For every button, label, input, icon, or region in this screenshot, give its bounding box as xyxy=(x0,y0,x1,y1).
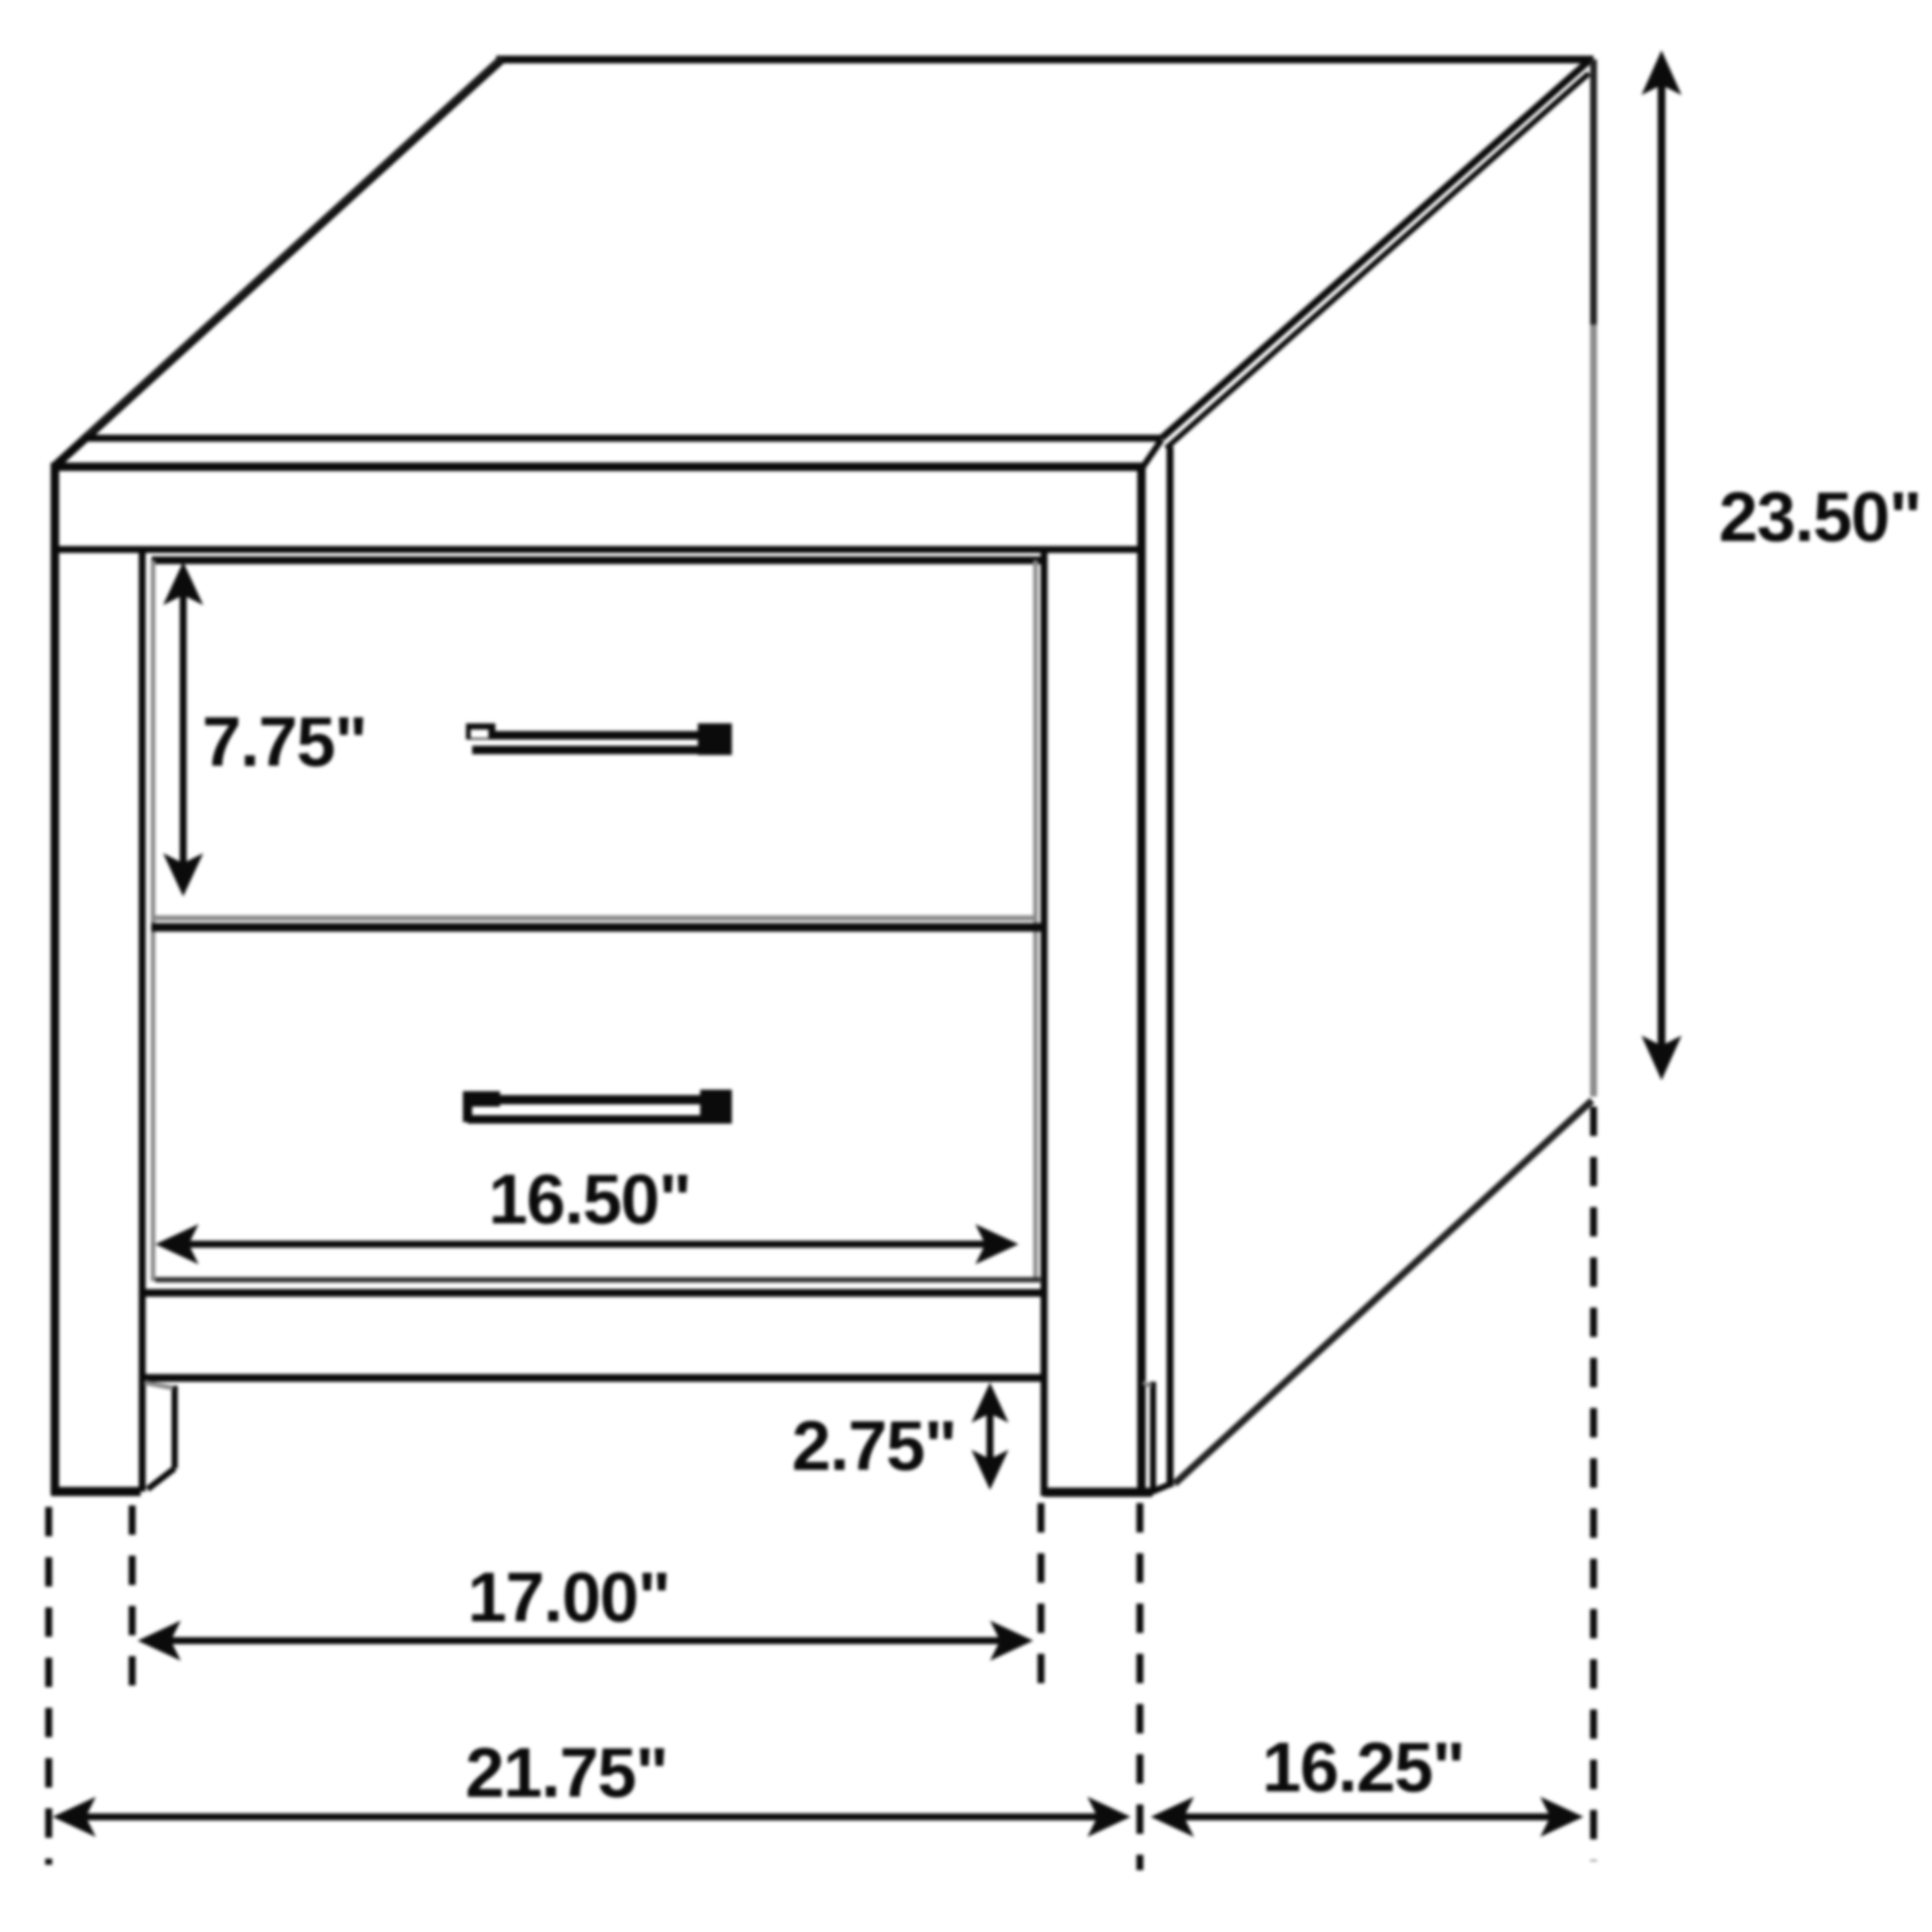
svg-text:2.75": 2.75" xyxy=(792,1407,957,1485)
svg-text:23.50": 23.50" xyxy=(1719,478,1921,556)
svg-text:21.75": 21.75" xyxy=(465,1734,668,1812)
svg-text:7.75": 7.75" xyxy=(202,703,367,781)
svg-text:17.00": 17.00" xyxy=(468,1559,670,1637)
svg-text:16.25": 16.25" xyxy=(1262,1729,1464,1807)
svg-text:16.50": 16.50" xyxy=(488,1161,691,1239)
